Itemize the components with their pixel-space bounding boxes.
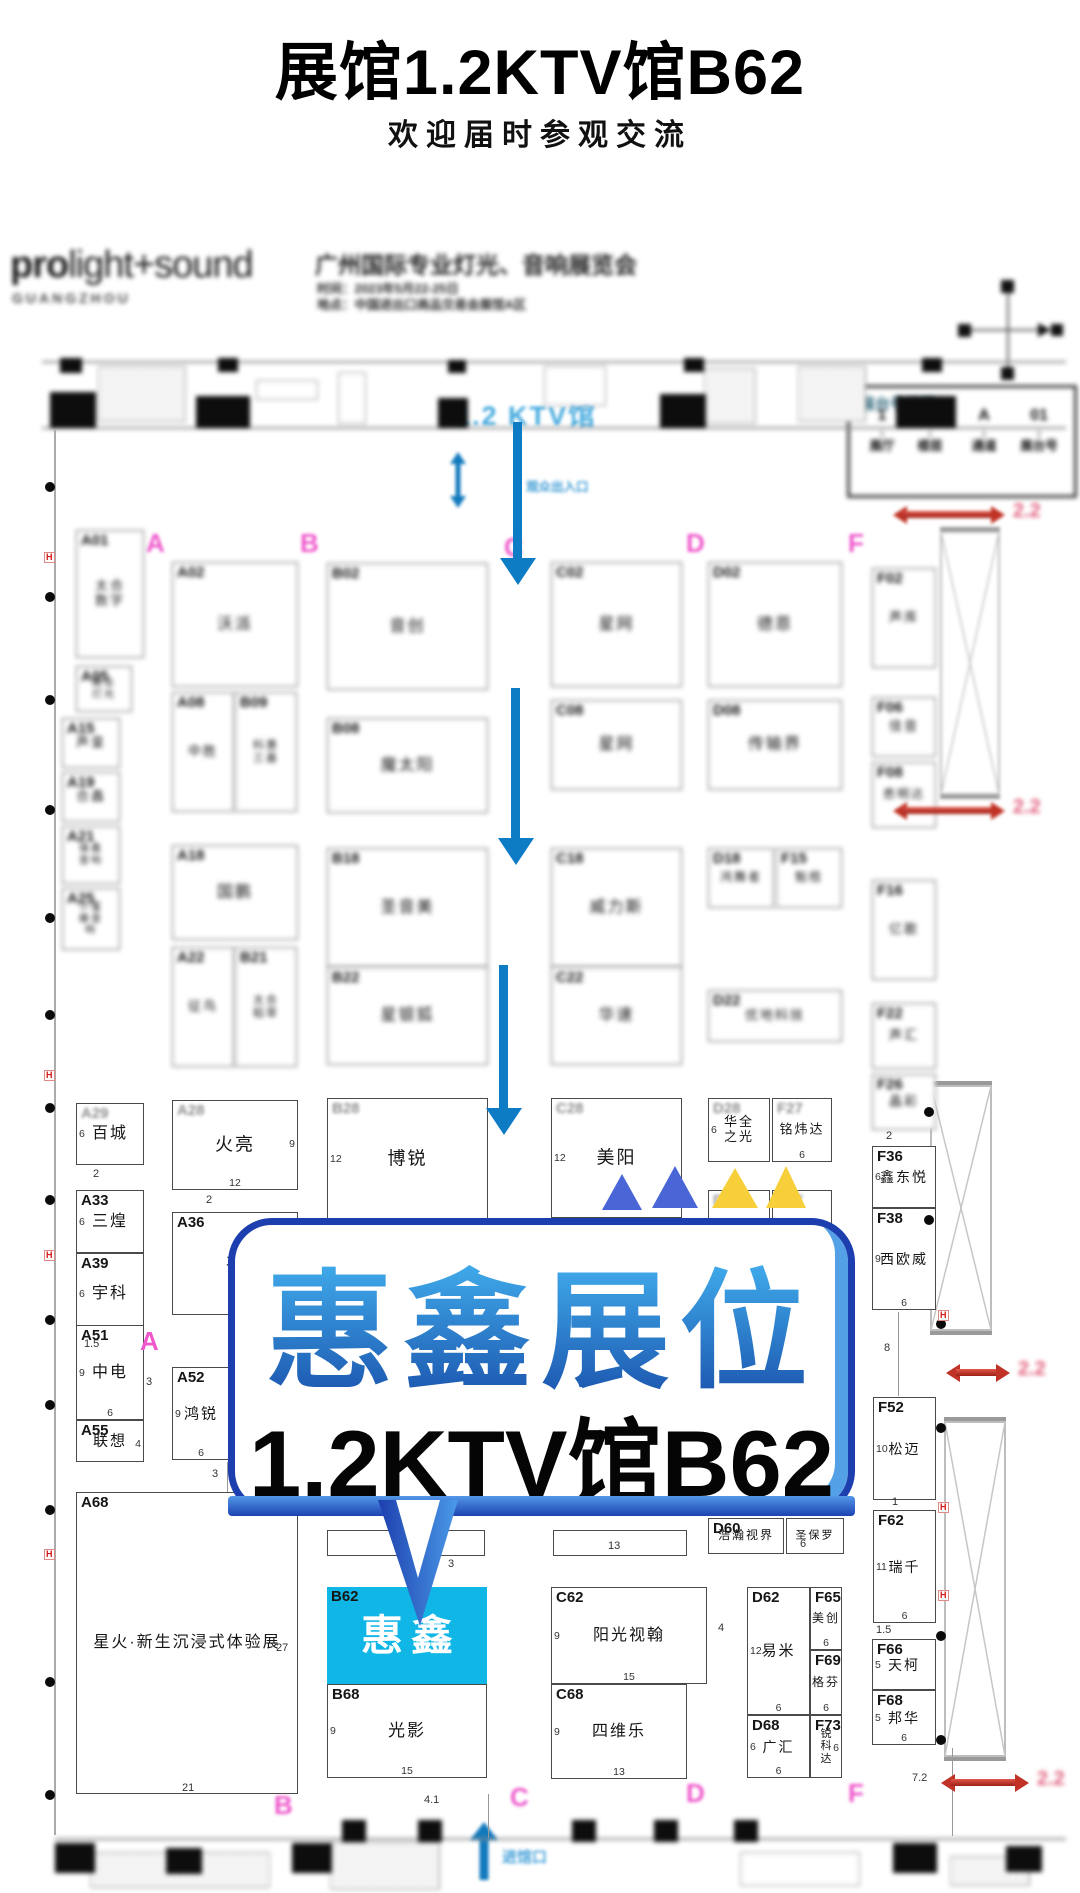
booth-dimension: 9 <box>330 1725 336 1737</box>
booth-D28: D28华全之光6 <box>708 1098 770 1162</box>
booth-id: A28 <box>177 1102 205 1119</box>
booth-name: 四维乐 <box>592 1722 646 1740</box>
booth-name: 魁梧 <box>795 871 823 885</box>
booth-id: F15 <box>781 850 807 867</box>
booth-id: A02 <box>177 564 205 581</box>
booth-B02: B02音创 <box>327 563 488 690</box>
booth-dimension: 6 <box>173 1447 229 1459</box>
booth-name: 亿歌 <box>889 923 919 938</box>
route-arrow-line <box>511 688 520 840</box>
dim-annotation: 6 <box>800 1538 806 1550</box>
expo-title: 广州国际专业灯光、音响展览会 <box>315 246 637 280</box>
booth-dimension: 5 <box>875 1712 881 1724</box>
booth-name: 征鸟 <box>188 1000 218 1015</box>
booth-name: 中胜 <box>188 745 218 760</box>
entrance-bottom-arrow-icon <box>470 1822 498 1880</box>
booth-dimension: 6 <box>77 1407 143 1419</box>
hydrant-marker: H <box>44 1250 55 1261</box>
booth-D22: D22优地科技 <box>708 990 842 1042</box>
booth-name: 小蜜蜂音响 <box>77 902 106 937</box>
booth-id: F68 <box>877 1692 903 1709</box>
wall-dot <box>45 1505 55 1515</box>
booth-dimension: 6 <box>873 1297 935 1309</box>
dim-annotation: 8 <box>884 1342 890 1354</box>
aisle-letter-A: A <box>140 1326 159 1357</box>
wall-dot <box>936 1423 946 1433</box>
dim-annotation: 27 <box>276 1642 288 1654</box>
booth-name: 悉明达 <box>883 788 925 802</box>
booth-dimension: 9 <box>175 1408 181 1420</box>
booth-name: 星火·新生沉浸式体验展 <box>93 1634 280 1652</box>
legend-label: 展厅 <box>862 439 902 453</box>
aisle-width-label: 2.2 <box>1013 796 1041 819</box>
booth-dimension: 13 <box>552 1766 686 1778</box>
hydrant-marker: H <box>44 1549 55 1560</box>
booth-name: 传输界 <box>748 736 802 754</box>
wall-dot <box>924 1107 934 1117</box>
legend-label: 展台号 <box>1008 439 1070 453</box>
booth-dimension: 12 <box>173 1177 297 1189</box>
booth-id: F52 <box>878 1399 904 1416</box>
booth-id: B22 <box>332 969 360 986</box>
booth-F69: F69格芬6 <box>810 1650 842 1715</box>
wall-dot <box>45 1195 55 1205</box>
booth-F62: F62瑞千116 <box>873 1510 936 1623</box>
booth-A22: A22征鸟 <box>172 947 234 1067</box>
aisle-letter-A: A <box>146 528 165 559</box>
hydrant-marker: H <box>44 1070 55 1081</box>
booth-name: 美阳 <box>597 1148 637 1169</box>
booth-A52: A52鸿锐96 <box>172 1367 230 1460</box>
legend-label: 楼层 <box>910 439 950 453</box>
aisle-width-label: 2.2 <box>1018 1358 1046 1381</box>
booth-name: 星网 <box>598 615 634 633</box>
booth-name: 博锐 <box>388 1149 428 1170</box>
booth-A21: A21锋鑫音响 <box>62 826 120 884</box>
booth-A29: A29百城6 <box>76 1103 144 1165</box>
wall-dot <box>45 1010 55 1020</box>
booth-name: 鸿锐 <box>184 1405 218 1422</box>
booth-A01: A01太合数字 <box>76 530 144 658</box>
wall-dot <box>45 805 55 815</box>
booth-name: 邦华 <box>888 1709 920 1725</box>
triangle-marker <box>712 1168 758 1208</box>
booth-D68: D68广汇66 <box>747 1715 810 1778</box>
booth-id: C02 <box>556 564 584 581</box>
booth-id: B18 <box>332 850 360 867</box>
booth-dimension: 6 <box>874 1610 935 1622</box>
booth-dimension: 12 <box>750 1645 762 1657</box>
booth-A25: A25小蜜蜂音响 <box>62 888 120 950</box>
booth-D62: D62易米126 <box>747 1587 810 1715</box>
dim-annotation: 3 <box>146 1376 152 1388</box>
booth-name: 星银狐 <box>380 1007 434 1025</box>
booth-id: B09 <box>240 694 268 711</box>
booth-A08: A08中胜 <box>172 692 234 812</box>
booth-F73: F73锐科达6 <box>810 1715 842 1778</box>
legend-code: A <box>962 408 1006 424</box>
booth-name: 天柯 <box>888 1656 920 1672</box>
booth-id: A01 <box>81 532 109 549</box>
booth-dimension: 6 <box>811 1637 841 1649</box>
booth-id: F02 <box>877 570 903 587</box>
booth-F15: F15魁梧 <box>776 848 842 908</box>
wall-dot <box>45 695 55 705</box>
booth-name: 阳光视翰 <box>593 1626 665 1644</box>
booth-id: B28 <box>332 1100 360 1117</box>
dim-annotation: 4 <box>718 1622 724 1634</box>
booth-dimension: 6 <box>750 1741 756 1753</box>
legend-item-展台号: 01↓展台号 <box>1008 408 1070 453</box>
legend-label: 通道 <box>962 439 1006 453</box>
booth-dimension: 6 <box>79 1288 85 1300</box>
booth-name: 瑞千 <box>889 1558 921 1574</box>
booth-name: 浩瀚视界 <box>718 1529 774 1543</box>
aisle-letter-D: D <box>686 1778 705 1809</box>
booth-dimension: 6 <box>833 1742 839 1754</box>
booth-name: 声汇 <box>889 1029 919 1044</box>
booth-name: 威力斯 <box>589 898 643 916</box>
booth-dimension: 12 <box>554 1152 566 1164</box>
booth-B22: B22星银狐 <box>327 967 488 1065</box>
booth-name: 星网 <box>598 736 634 754</box>
booth-A33: A33三煌6 <box>76 1190 144 1253</box>
booth-name: 声皇 <box>76 736 106 751</box>
route-arrow-line <box>499 965 508 1110</box>
booth-id: A33 <box>81 1192 109 1209</box>
booth-name: 联想 <box>93 1432 127 1449</box>
booth-F36: F36鑫东悦6 <box>872 1146 936 1208</box>
booth-name: 鸿舞者 <box>720 871 762 885</box>
aisle-width-arrow <box>941 1774 1029 1792</box>
aisle-width-arrow <box>893 506 1005 524</box>
logo-guangzhou: GUANGZHOU <box>12 290 131 306</box>
booth-name: 易米 <box>761 1642 795 1659</box>
booth-id: B68 <box>332 1686 360 1703</box>
booth-id: D68 <box>752 1717 780 1734</box>
truss-structure <box>930 1080 992 1336</box>
booth-name: 锋鑫音响 <box>77 844 106 867</box>
booth-id: D18 <box>713 850 741 867</box>
booth-dimension: 6 <box>773 1149 831 1161</box>
booth-B08: B08魔太阳 <box>327 718 488 813</box>
booth-F65: F65美创6 <box>810 1587 842 1650</box>
booth-A68: A68星火·新生沉浸式体验展 <box>76 1492 298 1794</box>
triangle-marker <box>652 1166 698 1208</box>
booth-id: A36 <box>177 1214 205 1231</box>
wall-dot <box>936 1631 946 1641</box>
booth-B09: B09科惠三基 <box>235 692 297 812</box>
dim-annotation: 2 <box>93 1168 99 1180</box>
booth-name: 合鑫 <box>76 790 106 805</box>
booth-dimension: 6 <box>748 1765 809 1777</box>
booth-C68: C68四维乐913 <box>551 1684 687 1779</box>
floor-plan-map: prolight+sound GUANGZHOU 广州国际专业灯光、音响展览会 … <box>0 0 1080 1893</box>
booth-A55: A55联想4 <box>76 1420 144 1462</box>
booth-D18: D18鸿舞者 <box>708 848 774 908</box>
dim-annotation: 2 <box>886 1130 892 1142</box>
booth-name: 国鹏 <box>217 883 253 901</box>
booth-id: A22 <box>177 949 205 966</box>
booth-F06: F06佳音 <box>872 697 936 757</box>
booth-dimension: 10 <box>876 1443 888 1455</box>
booth-id: C28 <box>556 1100 584 1117</box>
logo-bold: pro <box>10 244 68 286</box>
booth-F68: F68邦华56 <box>872 1690 936 1745</box>
booth-dimension: 6 <box>811 1702 841 1714</box>
booth-F02: F02声库 <box>872 568 936 668</box>
booth-id: C18 <box>556 850 584 867</box>
booth-name: 西欧威 <box>880 1251 928 1267</box>
dim-annotation: 3 <box>212 1468 218 1480</box>
truss-structure <box>944 1416 1006 1762</box>
booth-name: 铭炜达 <box>779 1123 824 1138</box>
booth-id: F62 <box>878 1512 904 1529</box>
booth-dimension: 12 <box>330 1153 342 1165</box>
wall-dot <box>936 1735 946 1745</box>
booth-id: C62 <box>556 1589 584 1606</box>
booth-id: F27 <box>777 1100 803 1117</box>
booth-name: 德恩 <box>757 615 793 633</box>
entrance-top-label: 观众出入口 <box>526 476 589 495</box>
booth-id: A08 <box>177 694 205 711</box>
booth-dimension: 11 <box>876 1561 887 1573</box>
callout-tail <box>376 1500 462 1632</box>
booth-id: F69 <box>815 1652 841 1669</box>
aisle-width-arrow <box>893 802 1005 820</box>
booth-B28: B28博锐12 <box>327 1098 488 1220</box>
dim-annotation: 1.5 <box>876 1624 891 1636</box>
booth-A19: A19合鑫 <box>62 772 120 822</box>
booth-name: 太合数字 <box>92 579 128 609</box>
booth-name: 松迈 <box>889 1440 921 1456</box>
booth-B21: B21太合稻草 <box>235 947 297 1067</box>
booth-dimension: 6 <box>79 1128 85 1140</box>
booth-name: 锐科达 <box>819 1728 834 1766</box>
booth-name: 声库 <box>889 611 919 626</box>
booth-F16: F16亿歌 <box>872 880 936 980</box>
aisle-letter-F: F <box>848 528 864 559</box>
booth-id: B08 <box>332 720 360 737</box>
booth-name: 宇科 <box>92 1285 128 1303</box>
aisle-letter-C: C <box>510 1782 529 1813</box>
booth-id: F06 <box>877 699 903 716</box>
booth-name: 鑫东悦 <box>880 1169 928 1185</box>
aisle-letter-B: B <box>300 528 319 559</box>
compass-icon <box>950 276 1066 380</box>
booth-id: F08 <box>877 764 903 781</box>
legend-code: 01 <box>1008 408 1070 424</box>
dim-annotation: 1.5 <box>84 1338 99 1350</box>
aisle-letter-B: B <box>274 1790 293 1821</box>
booth-B68: B68光影915 <box>327 1684 487 1778</box>
wall-dot <box>45 592 55 602</box>
booth-dimension: 9 <box>289 1138 295 1150</box>
wall-dot <box>45 1790 55 1800</box>
booth-dimension: 9 <box>875 1253 881 1265</box>
triangle-marker <box>766 1166 806 1208</box>
hydrant-marker: H <box>938 1310 949 1321</box>
hydrant-marker: H <box>938 1590 949 1601</box>
booth-F26: F26晶彩 <box>872 1074 936 1130</box>
aisle-width-label: 2.2 <box>1013 500 1041 523</box>
wall-dot <box>45 1400 55 1410</box>
wall-dot <box>924 1215 934 1225</box>
booth-A05: A05森业灯光 <box>76 666 132 712</box>
booth-dimension: 6 <box>875 1171 881 1183</box>
booth-name: 太合稻草 <box>250 994 281 1019</box>
wall-dot <box>45 1677 55 1687</box>
booth-name: 三煌 <box>92 1212 128 1230</box>
booth-id: A18 <box>177 847 205 864</box>
booth-dimension: 15 <box>552 1671 706 1683</box>
booth-name: 广汇 <box>763 1738 795 1754</box>
booth-name: 佳音 <box>889 720 919 735</box>
booth-id: C08 <box>556 702 584 719</box>
wall-dot <box>45 913 55 923</box>
entrance-top-arrow-icon <box>448 452 468 508</box>
truss-structure <box>940 526 1000 800</box>
booth-A15: A15声皇 <box>62 718 120 768</box>
booth-C02: C02星网 <box>551 562 682 687</box>
booth-name: 中电 <box>92 1363 128 1381</box>
left-wall-line <box>54 430 56 1835</box>
booth-dimension: 6 <box>79 1216 85 1228</box>
booth-name: 华全之光 <box>721 1115 757 1145</box>
booth-id: F36 <box>877 1148 903 1165</box>
booth-id: F22 <box>877 1005 903 1022</box>
booth-id: D22 <box>713 992 741 1009</box>
booth-A28: A28火亮912 <box>172 1100 298 1190</box>
booth-id: A39 <box>81 1255 109 1272</box>
booth-dimension: 9 <box>554 1726 560 1738</box>
booth-id: C68 <box>556 1686 584 1703</box>
booth-F66: F66天柯5 <box>872 1639 936 1690</box>
booth-dimension: 15 <box>328 1765 486 1777</box>
booth-id: D08 <box>713 702 741 719</box>
booth-name: 优地科技 <box>745 1009 805 1024</box>
booth-id: F65 <box>815 1589 841 1606</box>
booth-id: B62 <box>331 1588 359 1605</box>
route-arrow-head <box>486 1108 522 1135</box>
booth-F27: F27铭炜达6 <box>772 1098 832 1162</box>
callout-bottom-bar <box>228 1496 855 1516</box>
triangle-marker <box>602 1174 642 1210</box>
booth-name: 华速 <box>598 1007 634 1025</box>
prolight-sound-logo: prolight+sound <box>10 244 253 287</box>
booth-id: B21 <box>240 949 268 966</box>
booth-id: A68 <box>81 1494 109 1511</box>
booth-C18: C18威力斯 <box>551 848 682 967</box>
booth-id: C22 <box>556 969 584 986</box>
booth-A18: A18国鹏 <box>172 845 298 940</box>
aisle-width-arrow <box>946 1364 1010 1382</box>
booth-name: 火亮 <box>215 1135 255 1156</box>
dim-annotation: 13 <box>608 1540 620 1552</box>
booth-D02: D02德恩 <box>708 562 842 687</box>
booth-id: D02 <box>713 564 741 581</box>
route-arrow-line <box>513 422 522 560</box>
booth-id: F38 <box>877 1210 903 1227</box>
booth-dimension: 4 <box>135 1438 141 1450</box>
booth-name: 森业灯光 <box>90 678 119 701</box>
dim-annotation: 1 <box>892 1496 898 1508</box>
booth-id: A21 <box>67 828 95 845</box>
legend-item-通道: A↓通道 <box>962 408 1006 453</box>
route-arrow-head <box>498 838 534 865</box>
booth-name: 美创 <box>812 1612 840 1626</box>
route-arrow-head <box>500 558 536 585</box>
booth-id: F26 <box>877 1076 903 1093</box>
dim-annotation: 7.2 <box>912 1772 927 1784</box>
dim-annotation: 4.1 <box>424 1794 439 1806</box>
hydrant-marker: H <box>938 1502 949 1513</box>
booth-C62: C62阳光视翰915 <box>551 1587 707 1684</box>
booth-name: 圣音美 <box>380 898 434 916</box>
booth-id: A29 <box>81 1105 109 1122</box>
aisle-letter-F: F <box>848 1778 864 1809</box>
booth-dimension: 9 <box>79 1367 85 1379</box>
wall-dot <box>45 1315 55 1325</box>
aisle-width-label: 2.2 <box>1037 1768 1065 1791</box>
booth-name: 音创 <box>389 617 425 635</box>
dim-annotation: 2 <box>206 1194 212 1206</box>
booth-dimension: 9 <box>554 1630 560 1642</box>
booth-B18: B18圣音美 <box>327 848 488 967</box>
booth-name: 沃派 <box>217 615 253 633</box>
booth-id: A52 <box>177 1369 205 1386</box>
booth-C08: C08星网 <box>551 700 682 790</box>
booth-dimension: 5 <box>875 1659 881 1671</box>
wall-dot <box>45 482 55 492</box>
aisle-letter-D: D <box>686 528 705 559</box>
booth-name: 科惠三基 <box>250 739 281 764</box>
logo-rest: light+sound <box>68 244 252 286</box>
booth-id: B02 <box>332 565 360 582</box>
booth-dimension: 6 <box>748 1702 809 1714</box>
booth-name: 光影 <box>388 1721 426 1741</box>
booth-name: 百城 <box>92 1125 128 1143</box>
booth-F52: F52松迈10 <box>873 1397 936 1500</box>
booth-dimension: 6 <box>873 1732 935 1744</box>
callout-booth-name: 惠鑫展位 <box>238 1228 845 1413</box>
booth-A39: A39宇科6 <box>76 1253 144 1335</box>
booth-id: F16 <box>877 882 903 899</box>
booth-name: 格芬 <box>812 1676 840 1690</box>
booth-A02: A02沃派 <box>172 562 298 687</box>
hydrant-marker: H <box>44 552 55 563</box>
wall-dot <box>45 1103 55 1113</box>
booth-id: F66 <box>877 1641 903 1658</box>
booth-F22: F22声汇 <box>872 1003 936 1069</box>
booth-C22: C22华速 <box>551 967 682 1065</box>
booth-dimension: 6 <box>711 1124 717 1136</box>
booth-name: 魔太阳 <box>380 756 434 774</box>
booth-id: D62 <box>752 1589 780 1606</box>
expo-venue: 地点：中国进出口商品交易会展馆A区 <box>317 294 526 313</box>
entrance-bottom-label: 进馆口 <box>502 1846 547 1867</box>
booth-name: 晶彩 <box>889 1095 919 1110</box>
dim-annotation: 21 <box>182 1782 194 1794</box>
booth-D08: D08传输界 <box>708 700 842 790</box>
